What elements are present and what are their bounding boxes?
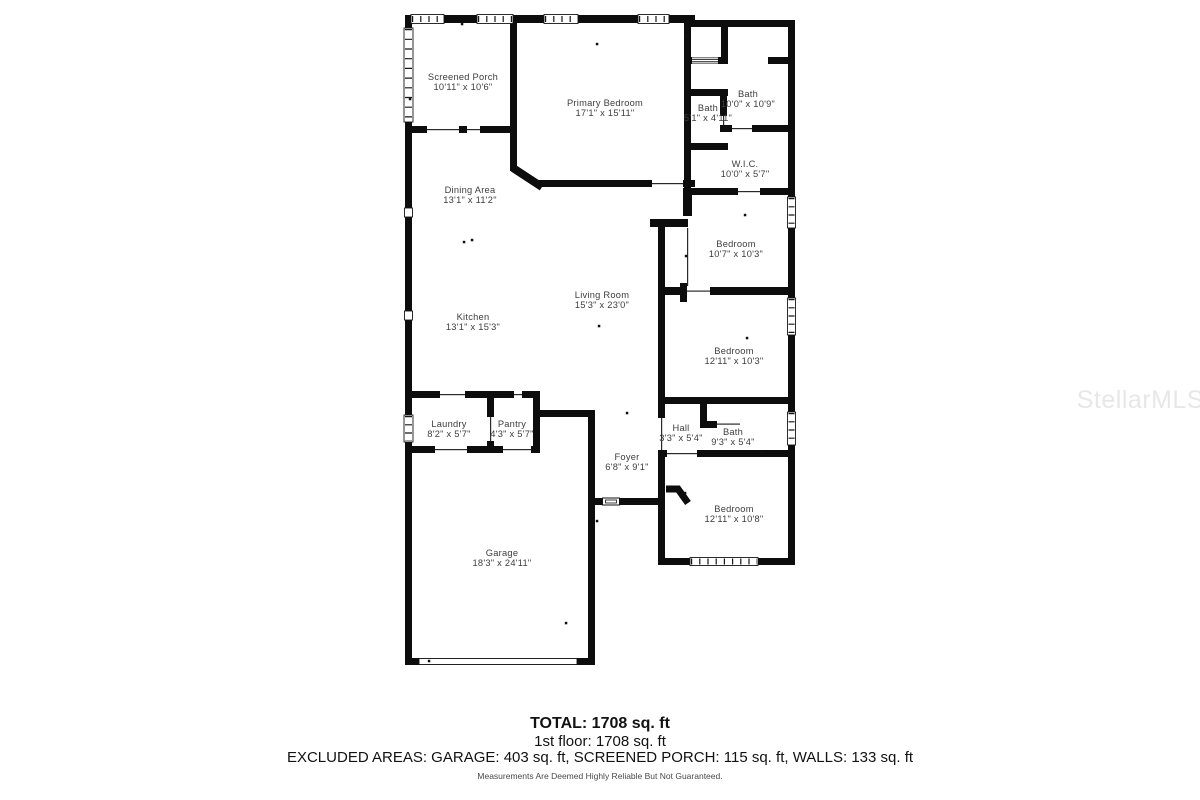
- room-dimensions: 6'8" x 9'1": [605, 462, 648, 472]
- room-dimensions: 13'1" x 11'2": [443, 195, 497, 205]
- total-area-text: TOTAL: 1708 sq. ft: [0, 715, 1200, 733]
- room-name: Bedroom: [705, 346, 764, 356]
- room-dimensions: 12'11" x 10'8": [705, 514, 764, 524]
- room-dimensions: 12'11" x 10'3": [705, 356, 764, 366]
- room-label: Hall 3'3" x 5'4": [659, 423, 702, 443]
- first-floor-area-text: 1st floor: 1708 sq. ft: [0, 733, 1200, 750]
- room-name: Bedroom: [709, 239, 763, 249]
- floor-plan-page: Screened Porch 10'11" x 10'6" Primary Be…: [0, 0, 1200, 800]
- room-label: Living Room 15'3" x 23'0": [575, 290, 629, 310]
- room-name: Bath: [721, 89, 775, 99]
- room-name: Laundry: [427, 419, 470, 429]
- room-label: Laundry 8'2" x 5'7": [427, 419, 470, 439]
- room-name: Foyer: [605, 452, 648, 462]
- room-label: Dining Area 13'1" x 11'2": [443, 185, 497, 205]
- room-name: Living Room: [575, 290, 629, 300]
- room-name: Pantry: [490, 419, 533, 429]
- room-name: Screened Porch: [428, 72, 498, 82]
- room-label: Garage 18'3" x 24'11": [473, 548, 532, 568]
- room-name: Hall: [659, 423, 702, 433]
- room-dimensions: 15'3" x 23'0": [575, 300, 629, 310]
- room-name: Kitchen: [446, 312, 500, 322]
- room-label: Bedroom 12'11" x 10'3": [705, 346, 764, 366]
- excluded-areas-text: EXCLUDED AREAS: GARAGE: 403 sq. ft, SCRE…: [0, 749, 1200, 766]
- stellar-mls-watermark: StellarMLS: [1077, 386, 1200, 415]
- room-name: Garage: [473, 548, 532, 558]
- room-label: Bath 9'3" x 5'4": [711, 427, 754, 447]
- room-name: Bath: [711, 427, 754, 437]
- room-dimensions: 10'7" x 10'3": [709, 249, 763, 259]
- room-name: Dining Area: [443, 185, 497, 195]
- room-label: Bedroom 12'11" x 10'8": [705, 504, 764, 524]
- room-name: Bath: [684, 103, 732, 113]
- room-dimensions: 10'11" x 10'6": [428, 82, 498, 92]
- room-dimensions: 10'0" x 5'7": [721, 169, 770, 179]
- room-label: Primary Bedroom 17'1" x 15'11": [567, 98, 643, 118]
- room-name: Bedroom: [705, 504, 764, 514]
- room-label: Pantry 4'3" x 5'7": [490, 419, 533, 439]
- room-label: Kitchen 13'1" x 15'3": [446, 312, 500, 332]
- room-label: Bedroom 10'7" x 10'3": [709, 239, 763, 259]
- room-dimensions: 4'3" x 5'7": [490, 429, 533, 439]
- room-label: W.I.C. 10'0" x 5'7": [721, 159, 770, 179]
- room-dimensions: 3'3" x 5'4": [659, 433, 702, 443]
- room-labels-layer: Screened Porch 10'11" x 10'6" Primary Be…: [0, 0, 1200, 800]
- disclaimer-text: Measurements Are Deemed Highly Reliable …: [0, 771, 1200, 781]
- room-dimensions: 13'1" x 15'3": [446, 322, 500, 332]
- room-name: Primary Bedroom: [567, 98, 643, 108]
- room-dimensions: 8'2" x 5'7": [427, 429, 470, 439]
- room-dimensions: 5'1" x 4'11": [684, 113, 732, 123]
- room-dimensions: 17'1" x 15'11": [567, 108, 643, 118]
- room-label: Foyer 6'8" x 9'1": [605, 452, 648, 472]
- room-label: Bath 5'1" x 4'11": [684, 103, 732, 123]
- room-dimensions: 18'3" x 24'11": [473, 558, 532, 568]
- room-name: W.I.C.: [721, 159, 770, 169]
- room-label: Screened Porch 10'11" x 10'6": [428, 72, 498, 92]
- room-dimensions: 9'3" x 5'4": [711, 437, 754, 447]
